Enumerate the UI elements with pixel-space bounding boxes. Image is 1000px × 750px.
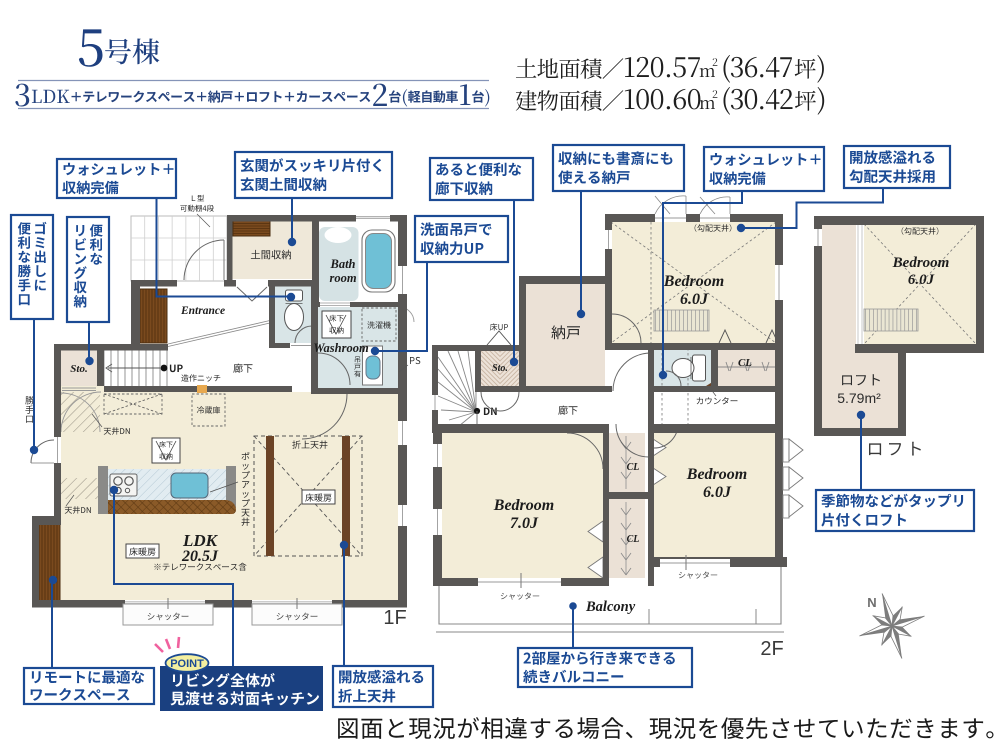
svg-text:N: N xyxy=(867,595,876,610)
svg-text:Bedroom: Bedroom xyxy=(493,497,554,514)
svg-text:Bedroom: Bedroom xyxy=(686,466,747,483)
svg-text:1F: 1F xyxy=(383,607,406,629)
svg-text:CL: CL xyxy=(627,534,640,545)
svg-text:room: room xyxy=(329,271,356,285)
svg-text:2F: 2F xyxy=(760,638,783,660)
svg-text:Bedroom: Bedroom xyxy=(892,255,950,271)
svg-text:20.5J: 20.5J xyxy=(181,548,219,565)
svg-text:Sto.: Sto. xyxy=(492,363,508,374)
svg-text:6.0J: 6.0J xyxy=(703,484,732,501)
svg-text:CL: CL xyxy=(738,357,752,369)
svg-text:Balcony: Balcony xyxy=(585,599,636,615)
svg-text:5.79m²: 5.79m² xyxy=(837,390,881,406)
svg-text:POINT: POINT xyxy=(170,658,204,670)
svg-text:7.0J: 7.0J xyxy=(510,515,539,532)
svg-text:CL: CL xyxy=(627,462,640,473)
svg-text:Entrance: Entrance xyxy=(180,305,225,317)
svg-text:Sto.: Sto. xyxy=(70,363,87,375)
svg-text:6.0J: 6.0J xyxy=(908,272,935,288)
svg-text:Washroom: Washroom xyxy=(313,341,369,355)
svg-text:Bedroom: Bedroom xyxy=(663,273,724,290)
svg-text:6.0J: 6.0J xyxy=(680,291,709,308)
svg-text:Bath: Bath xyxy=(329,257,355,271)
